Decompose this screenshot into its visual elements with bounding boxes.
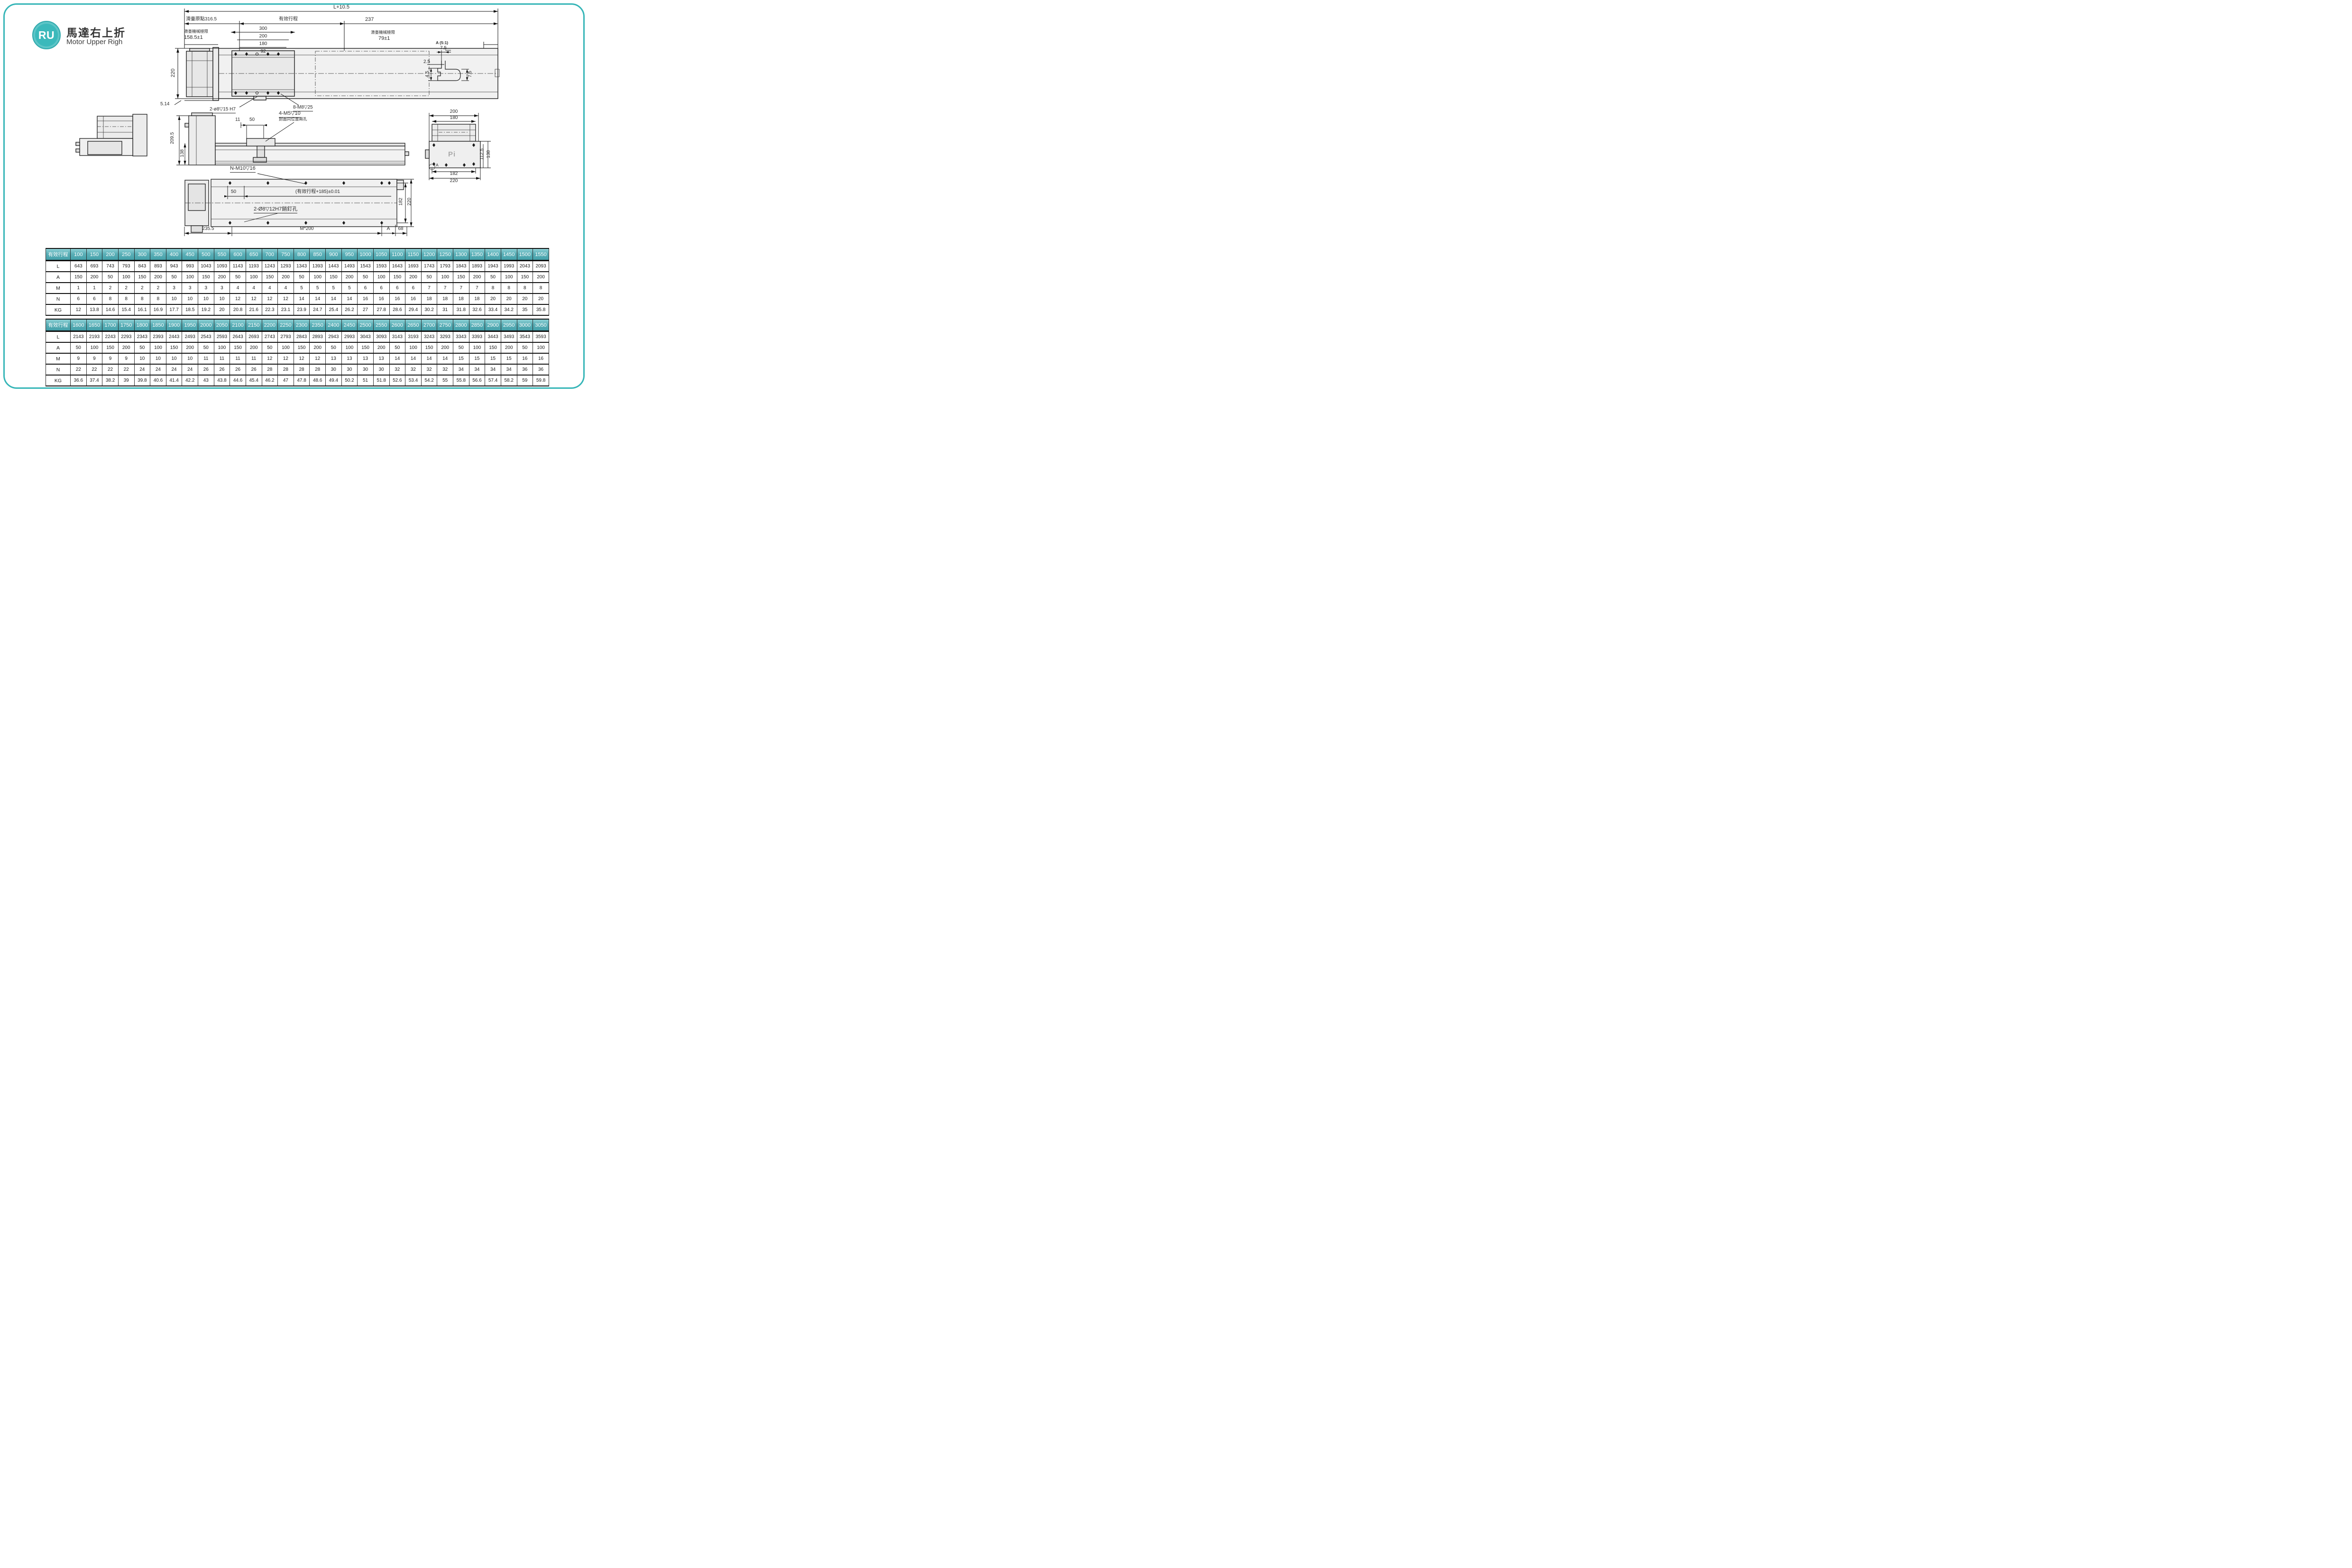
stroke-column-header: 750 [278,248,294,261]
spec-cell: 1793 [437,261,453,272]
stroke-column-header: 2550 [373,319,389,331]
spec-cell: 4 [246,283,262,293]
spec-cell: 46.2 [262,375,278,386]
spec-cell: 16 [517,353,533,364]
spec-cell: 150 [102,342,119,353]
spec-cell: 51 [358,375,374,386]
note-stroke-tolerance: (有效行程+185)±0.01 [273,190,363,195]
dim-50-bottom: 50 [231,190,236,195]
spec-cell: 200 [214,272,230,283]
spec-cell: 50 [166,272,182,283]
spec-cell: 2243 [102,331,119,343]
spec-cell: 22 [86,364,102,375]
dim-220-height: 220 [171,64,176,82]
spec-cell: 7 [437,283,453,293]
spec-cell: 2493 [182,331,198,343]
spec-cell: 200 [405,272,422,283]
motor-end-view-drawing [76,114,152,159]
spec-cell: 150 [71,272,87,283]
spec-cell: 38.2 [102,375,119,386]
spec-cell: 100 [246,272,262,283]
stroke-column-header: 1250 [437,248,453,261]
spec-cell: 2793 [278,331,294,343]
spec-cell: 37.4 [86,375,102,386]
spec-cell: 47 [278,375,294,386]
page-subtitle: Motor Upper Righ [66,38,122,46]
model-badge-label: RU [38,29,55,42]
spec-cell: 6 [405,283,422,293]
model-badge: RU [32,21,61,49]
note-pin-holes-bottom: 2-Ø8▽12H7銷釘孔 [254,207,297,213]
spec-cell: 2043 [517,261,533,272]
spec-cell: 1543 [358,261,374,272]
limit-label-right: 滑臺機械極限 [371,30,395,35]
spec-cell: 30.2 [421,304,437,315]
spec-cell: 24 [150,364,166,375]
spec-cell: 26 [214,364,230,375]
dim-origin: 滑臺原點316.5 [186,17,217,22]
spec-cell: 2993 [341,331,358,343]
spec-cell: 1243 [262,261,278,272]
spec-cell: 100 [118,272,134,283]
stroke-column-header: 300 [134,248,150,261]
spec-cell: 13 [341,353,358,364]
spec-cell: 50 [294,272,310,283]
spec-cell: 30 [373,364,389,375]
spec-cell: 2 [118,283,134,293]
stroke-column-header: 900 [326,248,342,261]
stroke-column-header: 2650 [405,319,422,331]
stroke-column-header: 250 [118,248,134,261]
bottom-plan-view: N-M10▽16 50 (有效行程+185)±0.01 2-Ø8▽12H7銷釘孔… [183,167,415,243]
spec-cell: 11 [246,353,262,364]
spec-cell: 3343 [453,331,469,343]
spec-cell: 16 [389,293,405,304]
spec-table-1: 有效行程100150200250300350400450500550600650… [46,248,549,316]
spec-cell: 12 [278,293,294,304]
spec-cell: 39 [118,375,134,386]
spec-cell: 3493 [501,331,517,343]
dim-180: 180 [254,42,273,47]
spec-cell: 2343 [134,331,150,343]
spec-cell: 14 [294,293,310,304]
spec-cell: 22.3 [262,304,278,315]
spec-cell: 18 [421,293,437,304]
dim-92: 92 [254,49,273,55]
motor-end-view [76,114,152,159]
spec-cell: 32 [389,364,405,375]
spec-cell: 50 [517,342,533,353]
spec-cell: 50 [198,342,214,353]
spec-cell: 1593 [373,261,389,272]
limit-value-right: 79±1 [378,36,390,42]
table-row: L214321932243229323432393244324932543259… [46,331,549,343]
dim-pitch: M*200 [293,227,321,232]
spec-cell: 7 [453,283,469,293]
spec-cell: 12 [246,293,262,304]
spec-cell: 100 [86,342,102,353]
spec-table-2: 有效行程160016501700175018001850190019502000… [46,319,549,386]
row-label: M [46,283,71,293]
stroke-column-header: 2350 [310,319,326,331]
table-row: A150200501001502005010015020050100150200… [46,272,549,283]
spec-cell: 12 [262,353,278,364]
dim-2355: 235.5 [198,227,219,232]
dim-180-end: 180 [444,116,463,121]
stroke-column-header: 2400 [326,319,342,331]
stroke-column-header: 2450 [341,319,358,331]
spec-cell: 41.4 [166,375,182,386]
spec-cell: 50 [453,342,469,353]
spec-cell: 200 [501,342,517,353]
spec-cell: 200 [469,272,485,283]
spec-cell: 22 [71,364,87,375]
row-label: KG [46,304,71,315]
spec-cell: 16 [533,353,549,364]
spec-cell: 2193 [86,331,102,343]
spec-cell: 943 [166,261,182,272]
spec-cell: 993 [182,261,198,272]
spec-cell: 11 [230,353,246,364]
limit-value-left: 158.5±1 [184,35,203,41]
spec-cell: 24 [182,364,198,375]
spec-cell: 150 [134,272,150,283]
spec-cell: 9 [86,353,102,364]
end-elevation-view: 200 180 Pi A 112.5 138 182 220 [424,110,496,193]
spec-table: 有效行程160016501700175018001850190019502000… [46,319,549,386]
spec-cell: 12 [278,353,294,364]
stroke-column-header: 1800 [134,319,150,331]
spec-cell: 50.2 [341,375,358,386]
dim-237: 237 [365,17,374,23]
side-elevation-view: 209.5 138 11 50 4-M5▽10 封面同位置兩孔 [175,112,413,174]
stroke-column-header: 2850 [469,319,485,331]
spec-cell: 29.4 [405,304,422,315]
spec-cell: 3393 [469,331,485,343]
spec-cell: 50 [102,272,119,283]
spec-cell: 3 [214,283,230,293]
dim-514: 5.14 [160,102,169,107]
spec-cell: 10 [182,293,198,304]
stroke-column-header: 1750 [118,319,134,331]
stroke-column-header: 700 [262,248,278,261]
spec-cell: 3 [198,283,214,293]
spec-cell: 200 [150,272,166,283]
spec-cell: 6 [86,293,102,304]
stroke-column-header: 2750 [437,319,453,331]
spec-cell: 20 [501,293,517,304]
spec-cell: 23.1 [278,304,294,315]
spec-cell: 6 [71,293,87,304]
spec-cell: 200 [310,342,326,353]
spec-cell: 24 [166,364,182,375]
table-row: L643693743793843893943993104310931143119… [46,261,549,272]
spec-cell: 1943 [485,261,501,272]
spec-cell: 9 [102,353,119,364]
spec-cell: 100 [469,342,485,353]
spec-cell: 1443 [326,261,342,272]
spec-cell: 8 [150,293,166,304]
spec-cell: 24 [134,364,150,375]
spec-cell: 15.4 [118,304,134,315]
stroke-column-header: 1500 [517,248,533,261]
spec-cell: 53.4 [405,375,422,386]
spec-cell: 10 [150,353,166,364]
spec-cell: 43.8 [214,375,230,386]
spec-cell: 18 [469,293,485,304]
spec-cell: 2143 [71,331,87,343]
stroke-header-label: 有效行程 [46,248,71,261]
stroke-column-header: 450 [182,248,198,261]
dim-2095: 209.5 [170,128,175,147]
spec-cell: 2943 [326,331,342,343]
spec-cell: 12 [71,304,87,315]
spec-cell: 19.2 [198,304,214,315]
dim-200: 200 [254,34,273,39]
spec-cell: 6 [373,283,389,293]
spec-cell: 14 [437,353,453,364]
spec-cell: 14 [389,353,405,364]
bottom-view-body [185,179,404,232]
row-label: L [46,261,71,272]
spec-cell: 32 [421,364,437,375]
spec-cell: 34 [453,364,469,375]
stroke-column-header: 2500 [358,319,374,331]
dim-68: 68 [394,227,407,232]
spec-cell: 100 [405,342,422,353]
spec-cell: 47.8 [294,375,310,386]
spec-cell: 12 [262,293,278,304]
spec-cell: 10 [198,293,214,304]
stroke-column-header: 2700 [421,319,437,331]
spec-cell: 18 [437,293,453,304]
spec-cell: 15 [469,353,485,364]
spec-cell: 32.6 [469,304,485,315]
spec-cell: 2093 [533,261,549,272]
spec-cell: 200 [437,342,453,353]
note-4m5-sub: 封面同位置兩孔 [279,117,307,121]
stroke-column-header: 1300 [453,248,469,261]
spec-cell: 20 [214,304,230,315]
spec-cell: 5 [294,283,310,293]
spec-cell: 42.2 [182,375,198,386]
spec-cell: 8 [134,293,150,304]
stroke-column-header: 2150 [246,319,262,331]
spec-cell: 150 [421,342,437,353]
spec-cell: 10 [166,353,182,364]
dim-11: 11 [235,118,240,123]
stroke-column-header: 2900 [485,319,501,331]
spec-cell: 49.4 [326,375,342,386]
dim-1125: 112.5 [480,145,485,164]
spec-cell: 200 [246,342,262,353]
spec-cell: 26 [198,364,214,375]
stroke-column-header: 2950 [501,319,517,331]
spec-cell: 20 [533,293,549,304]
spec-cell: 50 [230,272,246,283]
spec-cell: 28 [278,364,294,375]
spec-cell: 28 [262,364,278,375]
spec-cell: 1743 [421,261,437,272]
table-row: N222222222424242426262626282828283030303… [46,364,549,375]
spec-cell: 100 [373,272,389,283]
spec-cell: 3143 [389,331,405,343]
stroke-column-header: 3050 [533,319,549,331]
spec-cell: 200 [533,272,549,283]
spec-cell: 52.6 [389,375,405,386]
spec-cell: 16 [405,293,422,304]
stroke-column-header: 1550 [533,248,549,261]
table-row: N668888101010101212121214141414161616161… [46,293,549,304]
spec-cell: 150 [358,342,374,353]
stroke-column-header: 2050 [214,319,230,331]
spec-cell: 3243 [421,331,437,343]
spec-cell: 1143 [230,261,246,272]
spec-cell: 50 [326,342,342,353]
spec-cell: 32 [405,364,422,375]
spec-cell: 150 [262,272,278,283]
spec-cell: 12 [310,353,326,364]
spec-cell: 7 [469,283,485,293]
spec-cell: 3043 [358,331,374,343]
spec-cell: 2593 [214,331,230,343]
spec-cell: 8 [517,283,533,293]
stroke-column-header: 650 [246,248,262,261]
spec-cell: 48.6 [310,375,326,386]
stroke-column-header: 1050 [373,248,389,261]
stroke-column-header: 2200 [262,319,278,331]
spec-cell: 40.6 [150,375,166,386]
stroke-column-header: 500 [198,248,214,261]
spec-cell: 16 [373,293,389,304]
detail-a-drawing [423,41,485,95]
spec-cell: 1643 [389,261,405,272]
table-row: KG1213.814.615.416.116.917.718.519.22020… [46,304,549,315]
spec-cell: 1893 [469,261,485,272]
spec-cell: 5 [326,283,342,293]
dim-220-end: 220 [444,179,463,184]
spec-cell: 2 [134,283,150,293]
spec-cell: 150 [166,342,182,353]
spec-cell: 20 [485,293,501,304]
stroke-column-header: 1150 [405,248,422,261]
spec-cell: 14 [421,353,437,364]
spec-cell: 21.6 [246,304,262,315]
note-nm10: N-M10▽16 [230,166,256,173]
spec-cell: 50 [421,272,437,283]
spec-cell: 100 [150,342,166,353]
motor-end-body [76,114,147,156]
spec-cell: 100 [310,272,326,283]
spec-cell: 1393 [310,261,326,272]
spec-cell: 55.8 [453,375,469,386]
spec-cell: 1293 [278,261,294,272]
spec-cell: 32 [437,364,453,375]
dim-220-bottom: 220 [407,193,413,210]
spec-cell: 2 [102,283,119,293]
spec-cell: 31.8 [453,304,469,315]
spec-cell: 150 [198,272,214,283]
spec-cell: 51.8 [373,375,389,386]
row-label: A [46,342,71,353]
spec-cell: 9 [71,353,87,364]
spec-cell: 100 [437,272,453,283]
dim-300: 300 [254,27,273,32]
spec-cell: 743 [102,261,119,272]
spec-cell: 3 [182,283,198,293]
spec-cell: 15 [453,353,469,364]
dim-ref-a: A [382,227,395,232]
spec-cell: 11 [214,353,230,364]
spec-cell: 45.4 [246,375,262,386]
spec-cell: 36.6 [71,375,87,386]
spec-cell: 16.9 [150,304,166,315]
stroke-column-header: 1850 [150,319,166,331]
spec-cell: 100 [341,342,358,353]
spec-cell: 2893 [310,331,326,343]
stroke-column-header: 1100 [389,248,405,261]
spec-cell: 36 [533,364,549,375]
spec-cell: 8 [118,293,134,304]
detail-a-45: 4.5 [425,67,431,81]
spec-cell: 57.4 [485,375,501,386]
spec-cell: 10 [214,293,230,304]
spec-cell: 50 [485,272,501,283]
stroke-column-header: 800 [294,248,310,261]
row-label: A [46,272,71,283]
spec-cell: 15 [485,353,501,364]
stroke-column-header: 550 [214,248,230,261]
spec-cell: 793 [118,261,134,272]
spec-cell: 150 [326,272,342,283]
stroke-column-header: 2800 [453,319,469,331]
spec-cell: 843 [134,261,150,272]
spec-cell: 1693 [405,261,422,272]
detail-a-75-right: 7.5 [468,67,473,81]
spec-cell: 150 [294,342,310,353]
spec-cell: 10 [134,353,150,364]
spec-cell: 8 [533,283,549,293]
spec-cell: 13 [373,353,389,364]
spec-cell: 18.5 [182,304,198,315]
spec-cell: 1043 [198,261,214,272]
spec-cell: 2743 [262,331,278,343]
spec-cell: 1993 [501,261,517,272]
spec-cell: 39.8 [134,375,150,386]
spec-cell: 8 [485,283,501,293]
table-row: M112222333344445555666677778888 [46,283,549,293]
detail-a-profile [438,61,460,81]
spec-cell: 200 [118,342,134,353]
spec-cell: 30 [341,364,358,375]
stroke-column-header: 100 [71,248,87,261]
spec-cell: 50 [71,342,87,353]
row-label: L [46,331,71,343]
spec-cell: 150 [389,272,405,283]
spec-cell: 56.6 [469,375,485,386]
stroke-column-header: 850 [310,248,326,261]
spec-cell: 12 [294,353,310,364]
spec-cell: 26.2 [341,304,358,315]
table-row: M999910101010111111111212121213131313141… [46,353,549,364]
spec-cell: 100 [501,272,517,283]
stroke-column-header: 3000 [517,319,533,331]
spec-cell: 13 [326,353,342,364]
spec-cell: 26 [246,364,262,375]
spec-cell: 3443 [485,331,501,343]
dim-stroke-label: 有效行程 [279,17,298,22]
spec-cell: 643 [71,261,87,272]
